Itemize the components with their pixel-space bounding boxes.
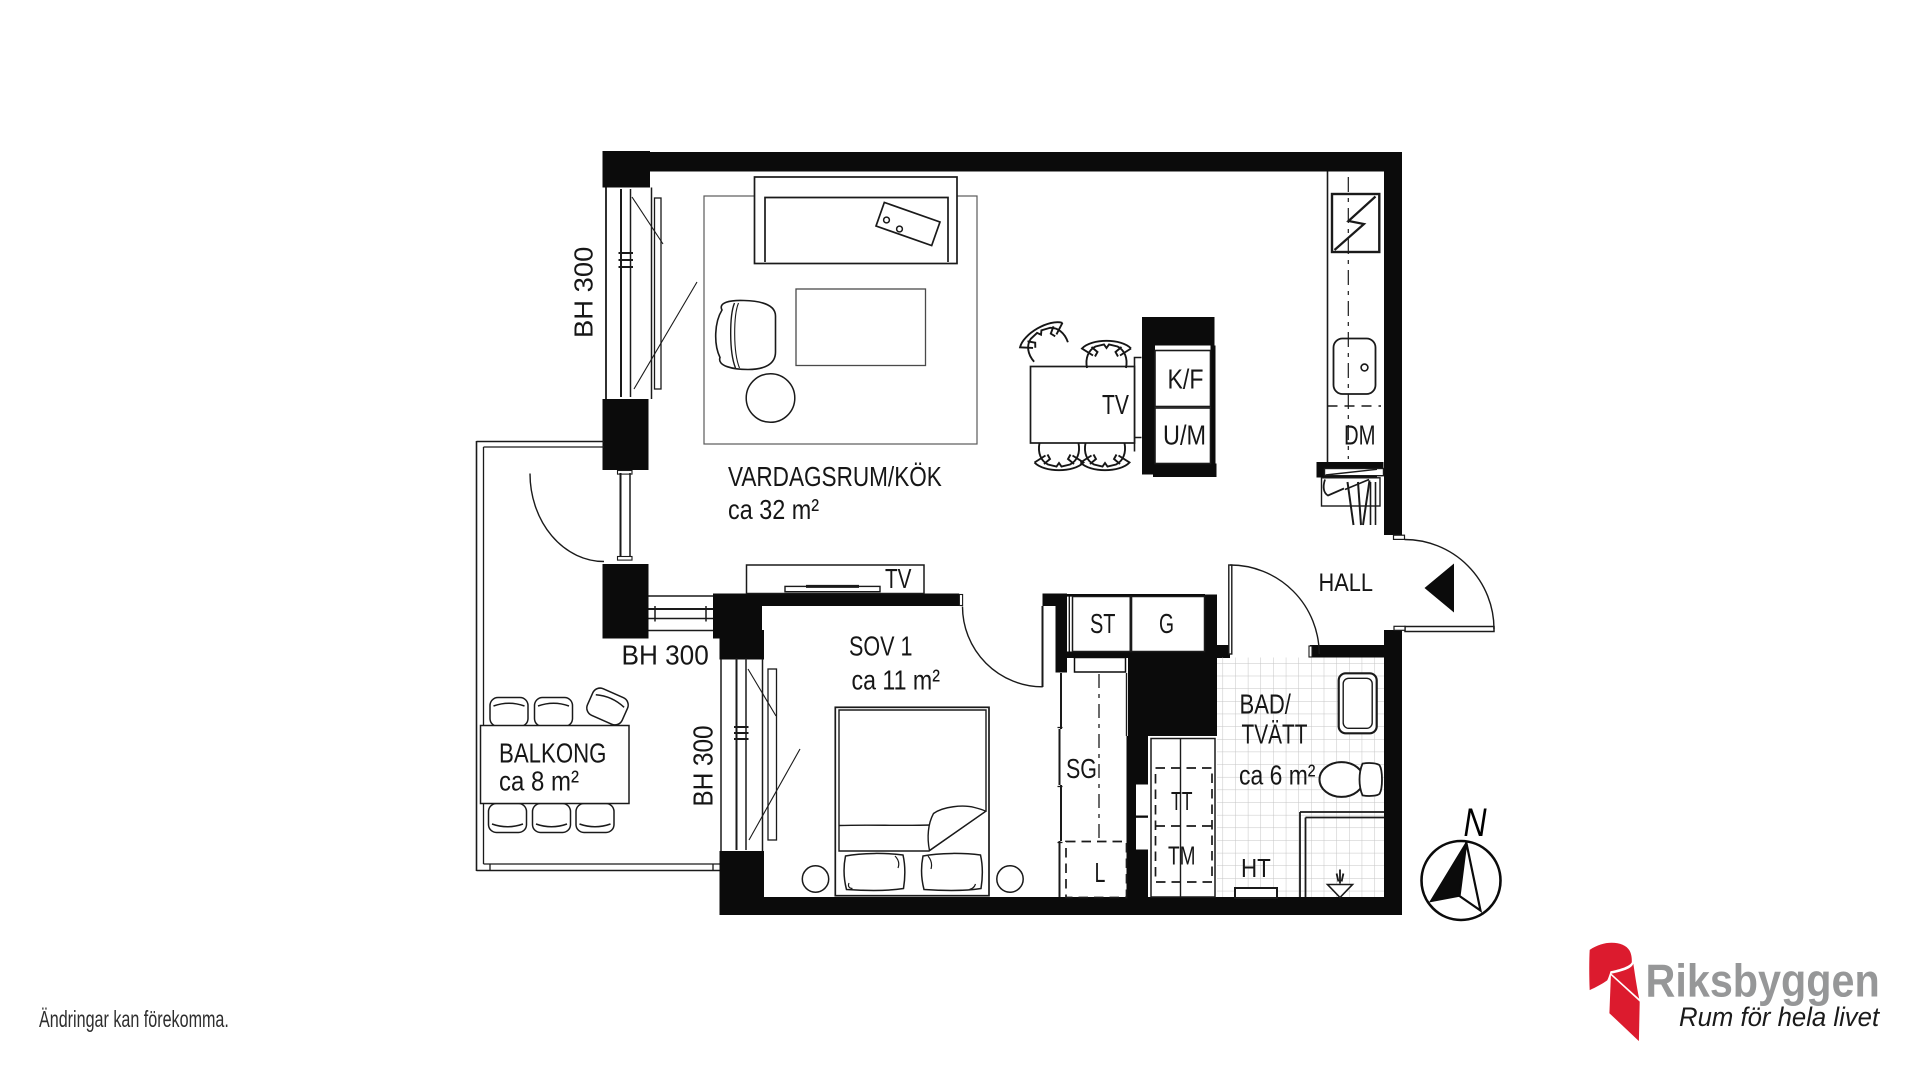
svg-text:ca 11 m²: ca 11 m² — [852, 666, 941, 696]
svg-text:HALL: HALL — [1319, 569, 1374, 597]
svg-text:TV: TV — [885, 564, 912, 595]
svg-text:Ändringar kan förekomma.: Ändringar kan förekomma. — [39, 1007, 229, 1033]
svg-text:ca 8 m²: ca 8 m² — [499, 765, 579, 797]
svg-text:TM: TM — [1168, 841, 1196, 871]
svg-text:TT: TT — [1171, 787, 1193, 816]
svg-text:ST: ST — [1090, 609, 1116, 640]
svg-text:Riksbyggen: Riksbyggen — [1646, 955, 1880, 1007]
svg-text:SOV 1: SOV 1 — [849, 631, 912, 662]
svg-text:N: N — [1464, 800, 1488, 845]
svg-text:BH 300: BH 300 — [622, 639, 709, 671]
svg-text:K/F: K/F — [1168, 365, 1204, 396]
svg-text:G: G — [1159, 609, 1174, 640]
svg-text:TV: TV — [1102, 390, 1129, 420]
svg-text:VARDAGSRUM/KÖK: VARDAGSRUM/KÖK — [728, 462, 942, 493]
svg-text:BH 300: BH 300 — [569, 247, 598, 338]
svg-text:ca 6 m²: ca 6 m² — [1239, 760, 1316, 791]
svg-text:L: L — [1095, 858, 1106, 889]
svg-text:Rum för hela livet: Rum för hela livet — [1679, 1001, 1881, 1032]
svg-text:BAD/: BAD/ — [1240, 689, 1291, 720]
svg-text:BH 300: BH 300 — [687, 725, 719, 806]
svg-text:SG: SG — [1066, 753, 1097, 784]
svg-text:HT: HT — [1241, 854, 1271, 883]
svg-text:DM: DM — [1344, 420, 1376, 451]
svg-text:ca 32 m²: ca 32 m² — [728, 495, 819, 525]
svg-text:U/M: U/M — [1163, 421, 1206, 451]
svg-text:TVÄTT: TVÄTT — [1242, 720, 1308, 751]
